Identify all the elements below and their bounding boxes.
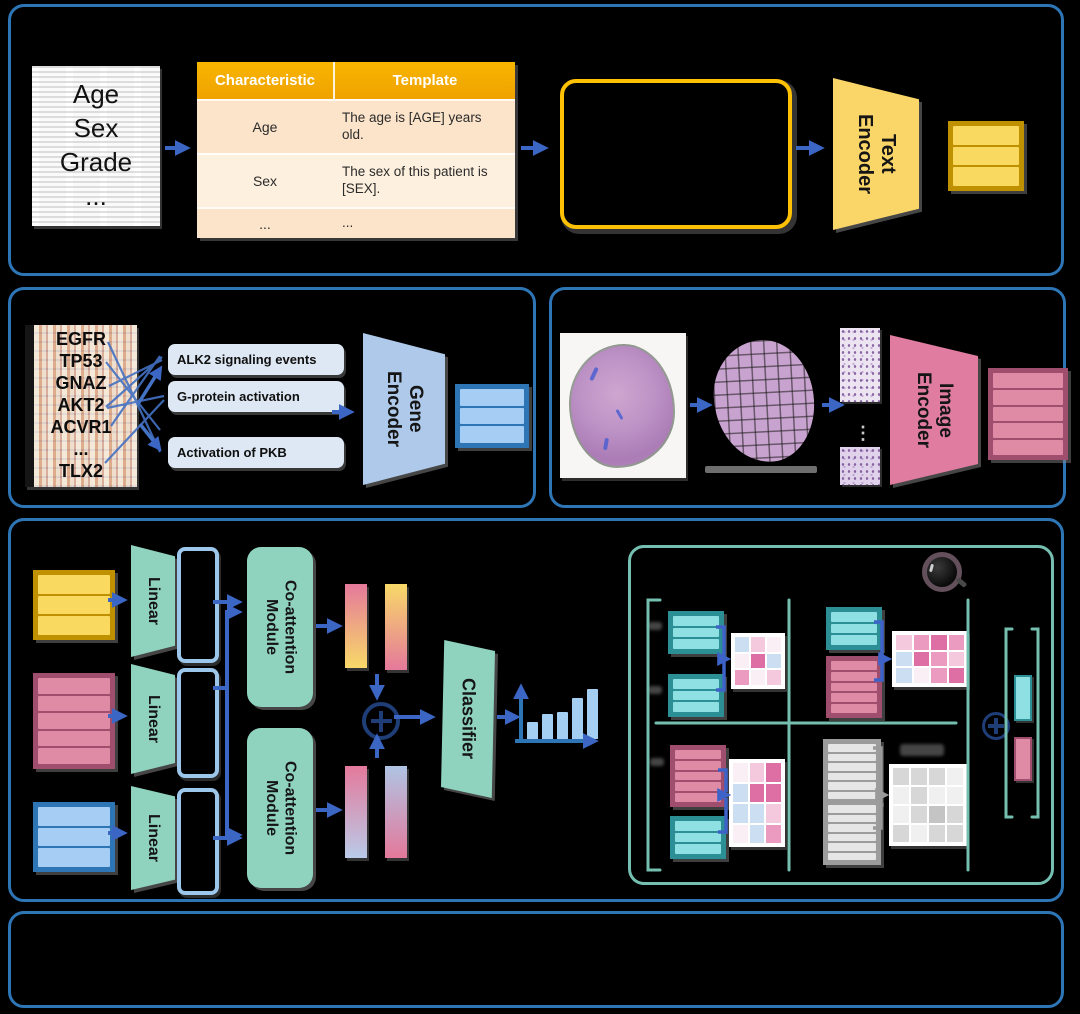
cell-characteristic: Age [197,101,333,153]
pathway-label: ALK2 signaling events [177,352,316,367]
blurred-label [900,744,944,756]
blurred-label [648,622,662,630]
heatmap-cell [929,825,945,842]
detail-feature-box [670,745,726,807]
heatmap-cell [914,652,930,667]
heatmap-cell [893,768,909,785]
output-vector-teal [1014,675,1032,721]
heatmap-cell [931,668,947,683]
gene-name: EGFR [25,329,137,351]
gene-embedding-box [455,384,529,448]
heatmap-cell [893,825,909,842]
blurred-label [648,686,662,694]
gene-name: ACVR1 [25,417,137,439]
gene-name: TP53 [25,351,137,373]
heatmap-cell [929,768,945,785]
gene-encoder-label: GeneEncoder [382,371,426,447]
prediction-bar-chart [527,689,601,739]
heatmap-cell [733,825,748,844]
cell-characteristic: ... [197,209,333,238]
heatmap-cell [735,654,749,669]
heatmap-cell [947,825,963,842]
detail-feature-box-gray [823,800,881,865]
image-encoder-label: ImageEncoder [912,372,956,448]
chart-bar [587,689,598,739]
coattention-module-1: Co-attentionModule [247,547,313,707]
image-embedding-box [988,368,1068,460]
chart-bar [557,712,568,739]
gene-name: ... [25,439,137,461]
linear-layer-2: Linear [131,664,175,774]
cell-characteristic: Sex [197,155,333,207]
image-encoder: ImageEncoder [890,335,978,485]
linear-label: Linear [144,577,162,625]
attended-feature-bar [345,584,367,668]
heatmap-cell [947,787,963,804]
heatmap-cell [911,787,927,804]
coattention-module-2: Co-attentionModule [247,728,313,888]
table-row: ... ... [197,207,515,238]
gene-name: TLX2 [25,461,137,483]
heatmap-cell [751,654,765,669]
detail-sum-icon [982,712,1010,740]
projected-feature-2 [177,668,219,778]
blurred-label [650,758,664,766]
table-row: Sex The sex of this patient is [SEX]. [197,153,515,207]
coattention-label: Co-attentionModule [262,580,299,674]
heatmap-cell [893,806,909,823]
patch-ellipsis: ⋮ [854,424,872,442]
heatmap-cell [931,652,947,667]
table-row: Age The age is [AGE] years old. [197,99,515,153]
gene-heatmap-image: EGFR TP53 GNAZ AKT2 ACVR1 ... TLX2 [25,325,137,487]
heatmap-cell [767,654,781,669]
heatmap-cell [766,763,781,782]
coattention-label: Co-attentionModule [262,761,299,855]
detail-feature-box [826,656,882,718]
table-header-template: Template [335,62,515,99]
detail-feature-box [668,674,724,717]
attention-heatmap-q2 [892,631,968,687]
heatmap-cell [911,825,927,842]
clinical-record-text: Age Sex Grade ... [60,78,132,213]
heatmap-cell [733,784,748,803]
heatmap-cell [911,806,927,823]
pathway-label: Activation of PKB [177,445,287,460]
heatmap-cell [911,768,927,785]
heatmap-cell [751,670,765,685]
cell-template: The age is [AGE] years old. [333,101,515,153]
detail-feature-box [668,611,724,654]
heatmap-cell [766,825,781,844]
patch-image [840,328,880,402]
magnifier-icon [922,552,962,592]
cell-template: ... [333,209,515,238]
gene-name: GNAZ [25,373,137,395]
heatmap-cell [750,763,765,782]
wsi-image [560,333,686,478]
heatmap-cell [751,637,765,652]
chart-bar [527,722,538,739]
classifier-label: Classifier [458,678,479,759]
doc-line: Grade [60,146,132,180]
patch-image [840,447,880,485]
heatmap-cell [735,637,749,652]
text-encoder-label: TextEncoder [853,114,899,194]
text-embedding-box [948,121,1024,191]
attention-heatmap-q3 [729,759,785,847]
detail-feature-box-gray [823,739,881,804]
linear-layer-3: Linear [131,786,175,890]
heatmap-cell [949,652,965,667]
gene-name: AKT2 [25,395,137,417]
clinical-record-image: Age Sex Grade ... [32,66,160,226]
heatmap-cell [750,784,765,803]
heatmap-cell [893,787,909,804]
attended-feature-bar [345,766,367,858]
pathway-pill: Activation of PKB [168,437,344,468]
heatmap-cell [750,825,765,844]
heatmap-cell [750,804,765,823]
heatmap-cell [947,768,963,785]
image-feature-input [33,673,115,769]
heatmap-cell [914,635,930,650]
table-header-characteristic: Characteristic [197,62,335,99]
doc-line: Age [60,78,132,112]
tissue-blob [569,344,675,468]
doc-line: ... [60,180,132,214]
heatmap-cell [929,787,945,804]
doc-line: Sex [60,112,132,146]
heatmap-cell [767,637,781,652]
heatmap-cell [914,668,930,683]
heatmap-cell [896,635,912,650]
pathway-pill: G-protein activation [168,381,344,412]
template-table: Characteristic Template Age The age is [… [197,62,515,238]
heatmap-cell [931,635,947,650]
heatmap-cell [949,668,965,683]
table-header-row: Characteristic Template [197,62,515,99]
linear-label: Linear [144,695,162,743]
detail-feature-box [670,816,726,859]
heatmap-cell [767,670,781,685]
cell-template: The sex of this patient is [SEX]. [333,155,515,207]
pathway-label: G-protein activation [177,389,300,404]
caption-panel [8,911,1064,1008]
projected-feature-3 [177,788,219,895]
heatmap-cell [896,652,912,667]
output-vector-pink [1014,737,1032,781]
text-feature-input [33,570,115,640]
heatmap-cell [766,784,781,803]
heatmap-cell [766,804,781,823]
heatmap-cell [896,668,912,683]
attention-heatmap-q1 [731,633,785,689]
gene-feature-input [33,802,115,872]
heatmap-cell [929,806,945,823]
pathway-pill: ALK2 signaling events [168,344,344,375]
heatmap-cell [949,635,965,650]
detail-feature-box [826,607,882,650]
heatmap-cell [733,804,748,823]
gene-encoder: GeneEncoder [363,333,445,485]
linear-layer-1: Linear [131,545,175,657]
heatmap-cell [733,763,748,782]
classifier-block: Classifier [441,640,495,798]
attention-heatmap-q4 [889,764,967,846]
fusion-sum-icon [362,702,400,740]
projected-feature-1 [177,547,219,663]
attended-feature-bar [385,584,407,670]
prompt-box [560,79,792,229]
text-encoder: TextEncoder [833,78,919,230]
figure-architecture-diagram: Age Sex Grade ... Characteristic Templat… [0,0,1080,1014]
chart-bar [542,714,553,739]
heatmap-cell [947,806,963,823]
linear-label: Linear [144,814,162,862]
heatmap-cell [735,670,749,685]
wsi-grid-baseline [705,466,817,473]
chart-bar [572,698,583,739]
attended-feature-bar [385,766,407,858]
